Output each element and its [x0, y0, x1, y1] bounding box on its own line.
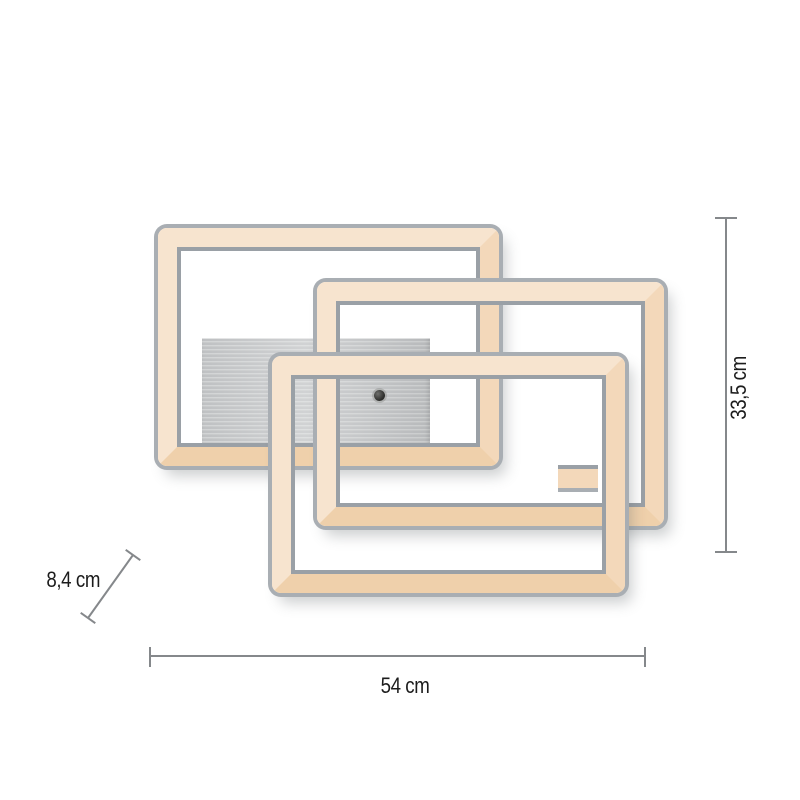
depth-dimension-tick-bottom	[81, 613, 96, 623]
depth-dimension-label: 8,4 cm	[32, 567, 100, 593]
height-dimension-label: 33,5 cm	[726, 320, 752, 456]
frame-interlock-patch	[558, 465, 598, 492]
width-dimension-label: 54 cm	[337, 673, 473, 699]
product-image: 54 cm 33,5 cm 8,4 cm	[0, 0, 800, 800]
depth-dimension-tick-top	[126, 550, 141, 560]
